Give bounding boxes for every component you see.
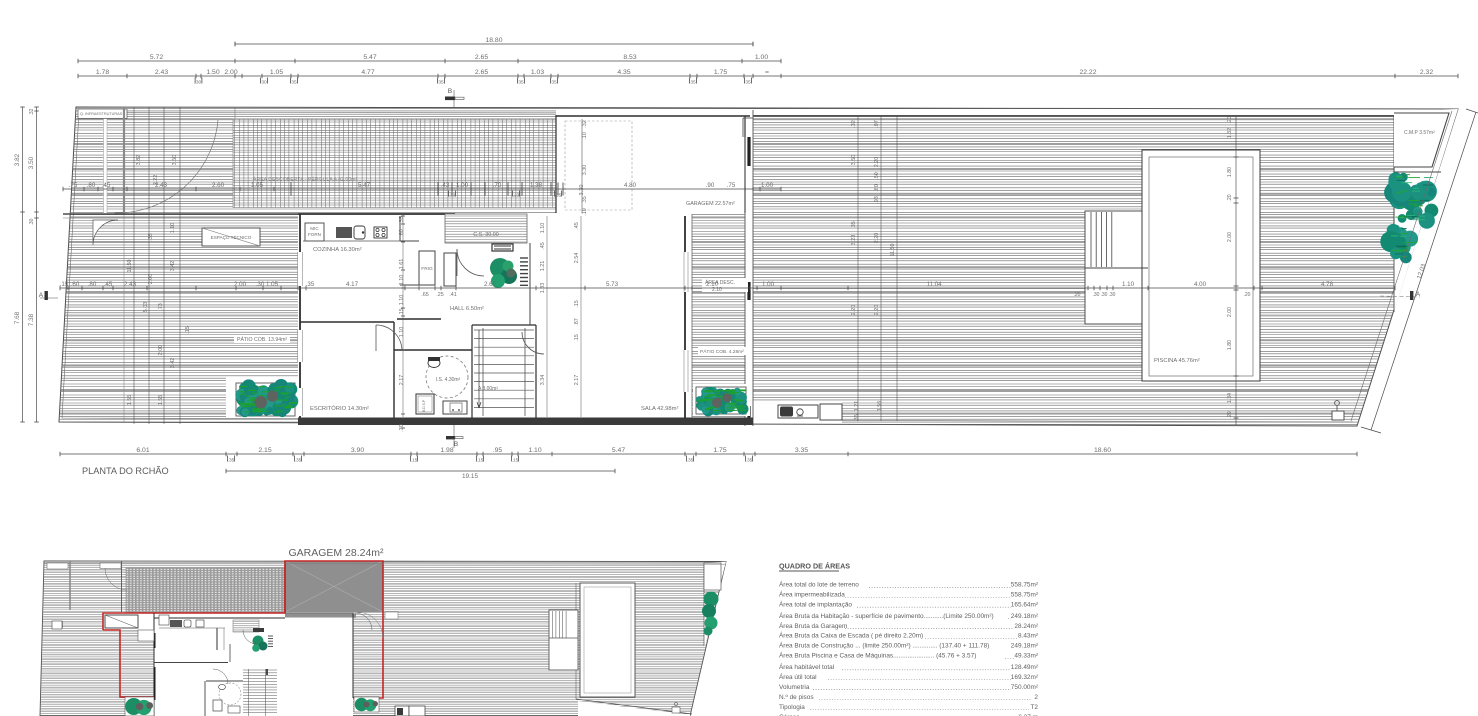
svg-text:.15: .15 (477, 458, 484, 464)
svg-text:Tipologia: Tipologia (779, 704, 805, 711)
svg-text:.45: .45 (102, 182, 111, 189)
svg-text:Volumetria: Volumetria (779, 684, 810, 691)
svg-text:ESCRITÓRIO 14.30m²: ESCRITÓRIO 14.30m² (310, 405, 369, 412)
svg-text:1.78: 1.78 (96, 69, 109, 76)
svg-text:.75: .75 (727, 182, 736, 189)
svg-text:2.00: 2.00 (224, 69, 237, 76)
svg-text:3.42: 3.42 (170, 261, 176, 272)
svg-text:.32: .32 (29, 108, 35, 115)
svg-text:.20: .20 (1227, 411, 1233, 418)
svg-text:C.S. 30.00: C.S. 30.00 (473, 232, 498, 238)
svg-text:.30: .30 (1109, 292, 1116, 298)
svg-text:.45: .45 (540, 242, 546, 250)
svg-text:HALL 6.50m²: HALL 6.50m² (450, 306, 484, 312)
svg-text:.20: .20 (1227, 194, 1233, 201)
svg-text:128.49m²: 128.49m² (1011, 664, 1039, 671)
svg-text:18.80: 18.80 (485, 37, 502, 44)
svg-text:.20: .20 (1227, 116, 1233, 123)
svg-text:1.34: 1.34 (1227, 393, 1233, 403)
svg-text:7.38: 7.38 (28, 313, 35, 326)
svg-text:.73: .73 (158, 303, 164, 311)
svg-text:19.15: 19.15 (462, 473, 478, 480)
svg-text:.95: .95 (493, 447, 503, 454)
svg-text:1.75: 1.75 (714, 69, 727, 76)
svg-text:PÁTIO COB. 13.94m²: PÁTIO COB. 13.94m² (237, 336, 287, 343)
svg-text:.15: .15 (574, 300, 580, 308)
svg-text:Área Bruta Piscina e Casa de M: Área Bruta Piscina e Casa de Máquinas...… (779, 651, 976, 660)
svg-text:35: 35 (690, 80, 696, 86)
svg-text:8.53: 8.53 (623, 54, 636, 61)
svg-text:PISCINA 45.76m²: PISCINA 45.76m² (1154, 358, 1200, 364)
svg-text:.30: .30 (1093, 292, 1100, 298)
svg-text:5.47: 5.47 (363, 54, 376, 61)
svg-text:2.20: 2.20 (851, 305, 857, 316)
svg-text:Q. INFRAESTRUTURAS: Q. INFRAESTRUTURAS (80, 112, 123, 116)
svg-text:1.10: 1.10 (399, 327, 405, 338)
svg-text:4.17: 4.17 (346, 281, 359, 288)
svg-text:1.10: 1.10 (528, 447, 541, 454)
svg-text:.97: .97 (874, 120, 880, 128)
svg-text:COZINHA 16.30m²: COZINHA 16.30m² (313, 247, 362, 253)
svg-text:1.05: 1.05 (270, 69, 283, 76)
svg-text:ESPAÇO TÉCNICO: ESPAÇO TÉCNICO (211, 234, 252, 240)
svg-text:30: 30 (261, 80, 267, 86)
svg-text:Área impermeabilizada: Área impermeabilizada (779, 589, 845, 598)
svg-text:2.20: 2.20 (874, 157, 880, 168)
svg-text:1.38: 1.38 (530, 182, 543, 189)
svg-text:.70: .70 (493, 182, 502, 189)
svg-text:1.05: 1.05 (251, 182, 264, 189)
svg-text:QUADRO DE ÁREAS: QUADRO DE ÁREAS (779, 562, 850, 571)
svg-text:3.82: 3.82 (136, 155, 142, 166)
svg-text:.15: .15 (60, 281, 69, 288)
svg-text:8.43m²: 8.43m² (1018, 633, 1039, 640)
svg-text:.93: .93 (874, 196, 880, 204)
svg-text:35: 35 (551, 80, 557, 86)
svg-text:Área Bruta da Caixa de Escada: Área Bruta da Caixa de Escada ( pé direi… (779, 631, 923, 640)
svg-text:1.10: 1.10 (170, 223, 176, 234)
svg-text:1.00: 1.00 (755, 54, 768, 61)
svg-text:=: = (765, 69, 769, 76)
svg-text:2.00: 2.00 (158, 345, 164, 356)
svg-text:1.10: 1.10 (399, 275, 405, 286)
svg-text:.30: .30 (449, 193, 456, 199)
svg-text:1.00: 1.00 (762, 281, 775, 288)
svg-text:PÁTIO COB. 4.28m²: PÁTIO COB. 4.28m² (700, 348, 744, 355)
svg-text:35: 35 (518, 80, 524, 86)
svg-text:3.50: 3.50 (851, 155, 857, 166)
svg-text:6.01: 6.01 (136, 447, 149, 454)
svg-text:3.34: 3.34 (540, 375, 546, 386)
svg-text:.30: .30 (29, 218, 35, 225)
svg-text:12.03: 12.03 (1416, 263, 1428, 280)
svg-text:1.03: 1.03 (531, 69, 544, 76)
svg-text:B.D.S.P: B.D.S.P (422, 399, 426, 412)
svg-text:1.00: 1.00 (456, 182, 469, 189)
svg-text:1.55: 1.55 (158, 395, 164, 406)
svg-text:I.S. 4.30m²: I.S. 4.30m² (436, 377, 461, 383)
svg-text:.23: .23 (513, 193, 520, 199)
svg-text:Área total do lote de terreno: Área total do lote de terreno (779, 580, 859, 589)
svg-text:.87: .87 (574, 318, 580, 326)
svg-text:4.77: 4.77 (361, 69, 374, 76)
svg-text:1.05: 1.05 (266, 281, 279, 288)
svg-text:.45: .45 (104, 281, 113, 288)
svg-text:169.32m²: 169.32m² (1011, 674, 1039, 681)
svg-text:11.50: 11.50 (127, 259, 133, 272)
svg-text:1.21: 1.21 (854, 401, 860, 412)
svg-text:.35: .35 (148, 233, 154, 241)
svg-text:2.60: 2.60 (484, 281, 497, 288)
svg-text:B: B (454, 441, 459, 448)
svg-text:Área habitável total: Área habitável total (779, 662, 834, 671)
svg-text:.41: .41 (449, 292, 457, 298)
svg-text:.35: .35 (687, 458, 694, 464)
svg-text:.15: .15 (185, 326, 191, 334)
svg-text:.75: .75 (69, 182, 78, 189)
svg-text:2.00: 2.00 (234, 281, 247, 288)
svg-text:N.º de pisos: N.º de pisos (779, 694, 814, 701)
svg-text:.20: .20 (1074, 292, 1081, 298)
svg-text:MIC: MIC (310, 226, 319, 231)
svg-text:FORN: FORN (308, 232, 321, 237)
svg-text:1.32: 1.32 (1227, 128, 1233, 138)
svg-text:Área Bruta da Garagem: Área Bruta da Garagem (779, 621, 847, 630)
svg-text:.90: .90 (706, 182, 715, 189)
svg-text:249.18m²: 249.18m² (1011, 643, 1039, 650)
svg-text:7.68: 7.68 (14, 311, 21, 324)
svg-text:5.47: 5.47 (358, 182, 371, 189)
svg-text:2.65: 2.65 (475, 54, 488, 61)
svg-text:2.00: 2.00 (1227, 307, 1233, 317)
svg-text:.32: .32 (582, 120, 588, 128)
svg-text:.35: .35 (228, 458, 235, 464)
svg-text:.80: .80 (87, 182, 96, 189)
svg-text:1.75: 1.75 (713, 447, 726, 454)
svg-text:4.78: 4.78 (1321, 281, 1334, 288)
svg-text:2.17: 2.17 (399, 375, 405, 386)
svg-text:2.15: 2.15 (258, 447, 271, 454)
svg-text:2.22: 2.22 (153, 175, 159, 186)
svg-text:Área Bruta de Construção ... (: Área Bruta de Construção ... (limite 250… (779, 641, 989, 650)
svg-text:PLANTA DO RCHÃO: PLANTA DO RCHÃO (82, 466, 169, 476)
svg-text:3.35: 3.35 (795, 447, 808, 454)
svg-text:558.75m²: 558.75m² (1011, 591, 1039, 598)
svg-text:249.18m²: 249.18m² (1011, 613, 1039, 620)
svg-text:4.00: 4.00 (1194, 281, 1207, 288)
svg-text:22.22: 22.22 (1079, 69, 1096, 76)
svg-text:FRIG: FRIG (421, 266, 433, 272)
svg-text:.35: .35 (399, 216, 405, 224)
svg-text:5.73: 5.73 (606, 281, 619, 288)
svg-text:C.M.P 3.57m²: C.M.P 3.57m² (1404, 130, 1435, 136)
svg-text:GARAGEM 22.57m²: GARAGEM 22.57m² (686, 201, 735, 207)
svg-text:750.00m²: 750.00m² (1011, 684, 1039, 691)
svg-text:3.82: 3.82 (14, 153, 21, 166)
svg-text:ÁREA DESCOBERTA - PÉRGULA A 42: ÁREA DESCOBERTA - PÉRGULA A 42.00m² (253, 176, 357, 183)
svg-text:1.50: 1.50 (206, 69, 219, 76)
svg-text:A 3.00m²: A 3.00m² (478, 386, 498, 392)
svg-text:1.10: 1.10 (1122, 281, 1135, 288)
svg-text:1.55: 1.55 (127, 395, 133, 406)
svg-text:11.50: 11.50 (890, 243, 896, 256)
svg-text:.65: .65 (421, 292, 429, 298)
svg-text:1.00: 1.00 (761, 182, 774, 189)
svg-text:.15: .15 (399, 308, 405, 316)
svg-text:3.30: 3.30 (582, 165, 588, 176)
svg-text:.10: .10 (582, 208, 588, 216)
svg-text:.25: .25 (436, 292, 444, 298)
svg-text:4.80: 4.80 (624, 182, 637, 189)
svg-text:1.56: 1.56 (877, 401, 883, 412)
svg-text:.50: .50 (874, 172, 880, 180)
svg-text:3.42: 3.42 (170, 358, 176, 369)
svg-text:1.80: 1.80 (1227, 340, 1233, 350)
svg-text:2.00: 2.00 (148, 274, 154, 285)
svg-text:T2: T2 (1030, 704, 1038, 711)
svg-text:3.50: 3.50 (28, 156, 35, 169)
svg-text:1.21: 1.21 (540, 261, 546, 272)
svg-text:1.10: 1.10 (399, 295, 405, 306)
svg-text:.80: .80 (88, 281, 97, 288)
svg-text:30: 30 (196, 80, 202, 86)
svg-text:2.20: 2.20 (874, 305, 880, 316)
svg-text:4.35: 4.35 (617, 69, 630, 76)
svg-text:A: A (39, 292, 44, 299)
svg-text:.45: .45 (574, 222, 580, 230)
svg-text:49.33m²: 49.33m² (1014, 653, 1038, 660)
svg-text:.60: .60 (71, 281, 80, 288)
svg-text:.43: .43 (441, 182, 450, 189)
svg-text:GARAGEM 28.24m²: GARAGEM 28.24m² (288, 547, 384, 559)
svg-text:.20: .20 (1244, 292, 1251, 298)
svg-text:.15: .15 (574, 334, 580, 342)
svg-text:.30: .30 (256, 281, 265, 288)
svg-text:2.43: 2.43 (155, 69, 168, 76)
svg-text:11.04: 11.04 (926, 281, 942, 288)
svg-text:5.03: 5.03 (143, 302, 149, 313)
svg-text:1.10: 1.10 (540, 223, 546, 234)
svg-text:2.10: 2.10 (706, 281, 719, 288)
svg-text:1.98: 1.98 (440, 447, 453, 454)
svg-text:1.33: 1.33 (540, 283, 546, 294)
svg-text:.35: .35 (854, 414, 860, 422)
svg-text:35: 35 (291, 80, 297, 86)
svg-text:.60: .60 (874, 184, 880, 192)
svg-text:165.64m²: 165.64m² (1011, 601, 1039, 608)
svg-text:.60: .60 (399, 229, 405, 237)
svg-text:B: B (448, 88, 453, 95)
svg-text:.15: .15 (512, 458, 519, 464)
svg-text:.35: .35 (582, 196, 588, 204)
svg-text:.35: .35 (555, 193, 562, 199)
svg-text:18.60: 18.60 (1094, 447, 1111, 454)
svg-text:2.65: 2.65 (475, 69, 488, 76)
svg-text:.10: .10 (582, 132, 588, 140)
svg-text:2.00: 2.00 (1227, 232, 1233, 242)
svg-text:35: 35 (438, 80, 444, 86)
svg-text:.35: .35 (306, 281, 315, 288)
svg-text:.32: .32 (851, 120, 857, 128)
svg-text:5.47: 5.47 (612, 447, 625, 454)
svg-text:2.60: 2.60 (212, 182, 225, 189)
svg-text:3.23: 3.23 (851, 235, 857, 246)
svg-text:558.75m²: 558.75m² (1011, 582, 1039, 589)
svg-text:28.24m²: 28.24m² (1014, 623, 1038, 630)
svg-text:2.32: 2.32 (1420, 69, 1433, 76)
svg-text:.35: .35 (851, 221, 857, 229)
svg-text:.30: .30 (1101, 292, 1108, 298)
svg-text:2.17: 2.17 (574, 375, 580, 386)
svg-text:3.90: 3.90 (351, 447, 364, 454)
svg-text:Área Bruta da Habitação - supe: Área Bruta da Habitação - superfície de … (779, 611, 994, 620)
svg-text:5.72: 5.72 (150, 54, 163, 61)
svg-text:2.54: 2.54 (574, 253, 580, 264)
svg-text:Área útil total: Área útil total (779, 672, 817, 681)
svg-text:Área total de implantação: Área total de implantação (779, 599, 852, 608)
svg-text:.35: .35 (295, 458, 302, 464)
svg-text:3.50: 3.50 (172, 155, 178, 166)
svg-text:35: 35 (745, 80, 751, 86)
svg-text:2.20: 2.20 (874, 233, 880, 244)
svg-text:1.61: 1.61 (399, 259, 405, 270)
svg-text:SALA 42.98m²: SALA 42.98m² (641, 406, 678, 412)
svg-text:1.80: 1.80 (1227, 167, 1233, 177)
svg-text:2: 2 (1034, 694, 1038, 701)
svg-text:.15: .15 (411, 458, 418, 464)
svg-text:2.43: 2.43 (124, 281, 137, 288)
svg-text:.35: .35 (746, 458, 753, 464)
